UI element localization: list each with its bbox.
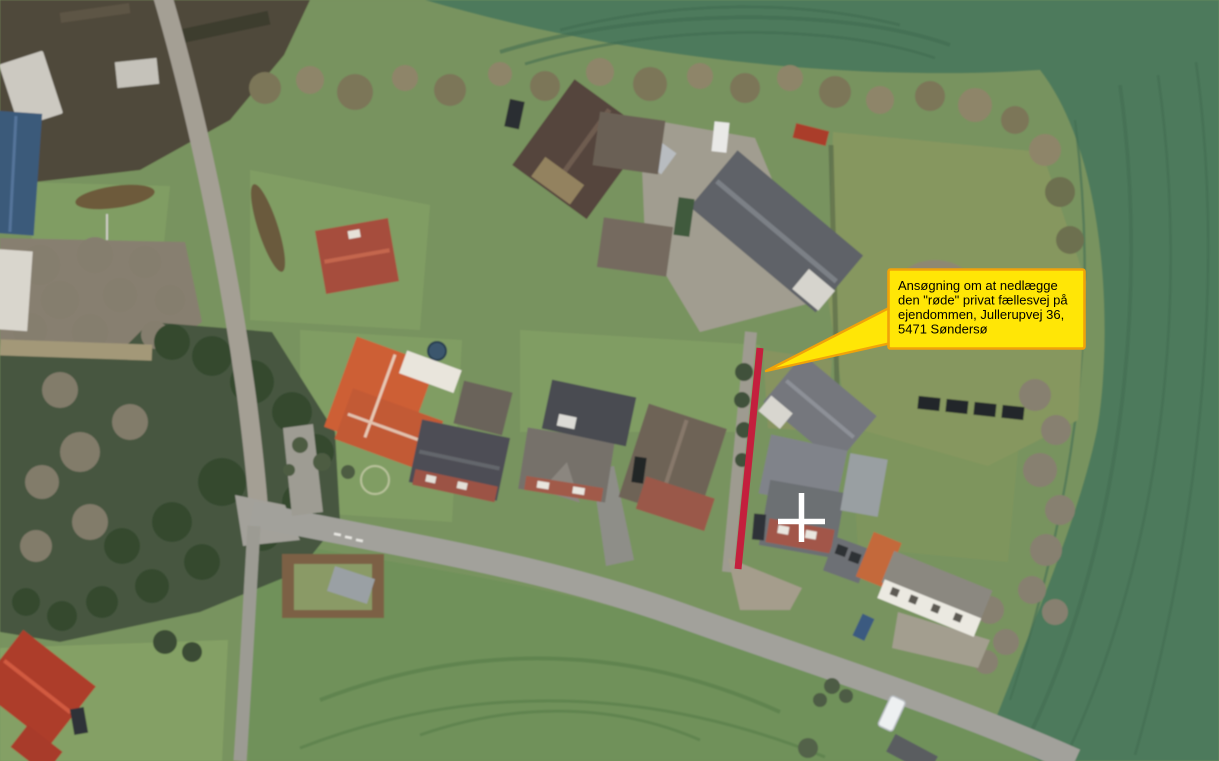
aerial-scene <box>0 0 1219 761</box>
callout-line-2: den "røde" privat fællesvej på <box>898 293 1068 308</box>
white-building <box>0 249 33 332</box>
shed-roof <box>597 217 673 276</box>
trampoline <box>428 342 446 360</box>
shed-roof <box>593 112 666 175</box>
callout-line-1: Ansøgning om at nedlægge <box>898 278 1058 293</box>
van <box>711 121 729 152</box>
callout-line-3: ejendommen, Jullerupvej 36, <box>898 307 1064 322</box>
car <box>752 514 766 541</box>
aerial-photo: Ansøgning om at nedlægge den "røde" priv… <box>0 0 1219 761</box>
callout-line-4: 5471 Søndersø <box>898 322 988 337</box>
